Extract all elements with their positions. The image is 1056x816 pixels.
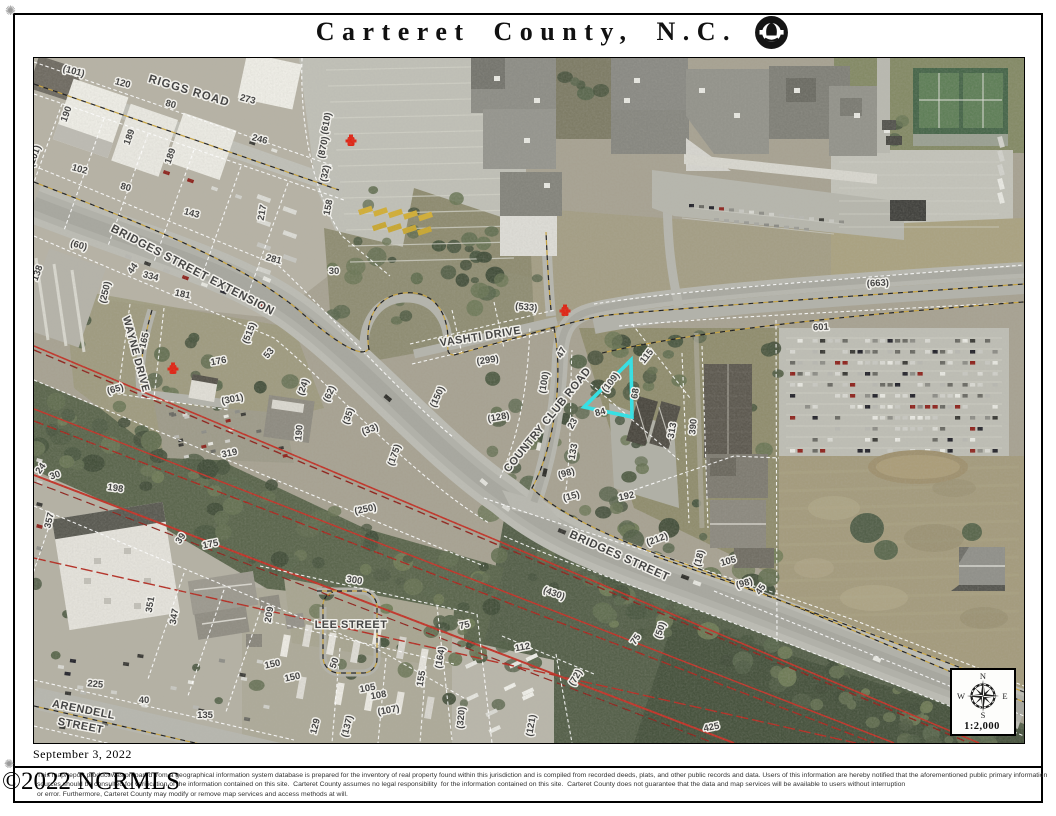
svg-text:W: W <box>957 691 965 701</box>
svg-text:N: N <box>980 671 986 681</box>
svg-text:S: S <box>981 710 986 720</box>
svg-text:E: E <box>1002 691 1007 701</box>
